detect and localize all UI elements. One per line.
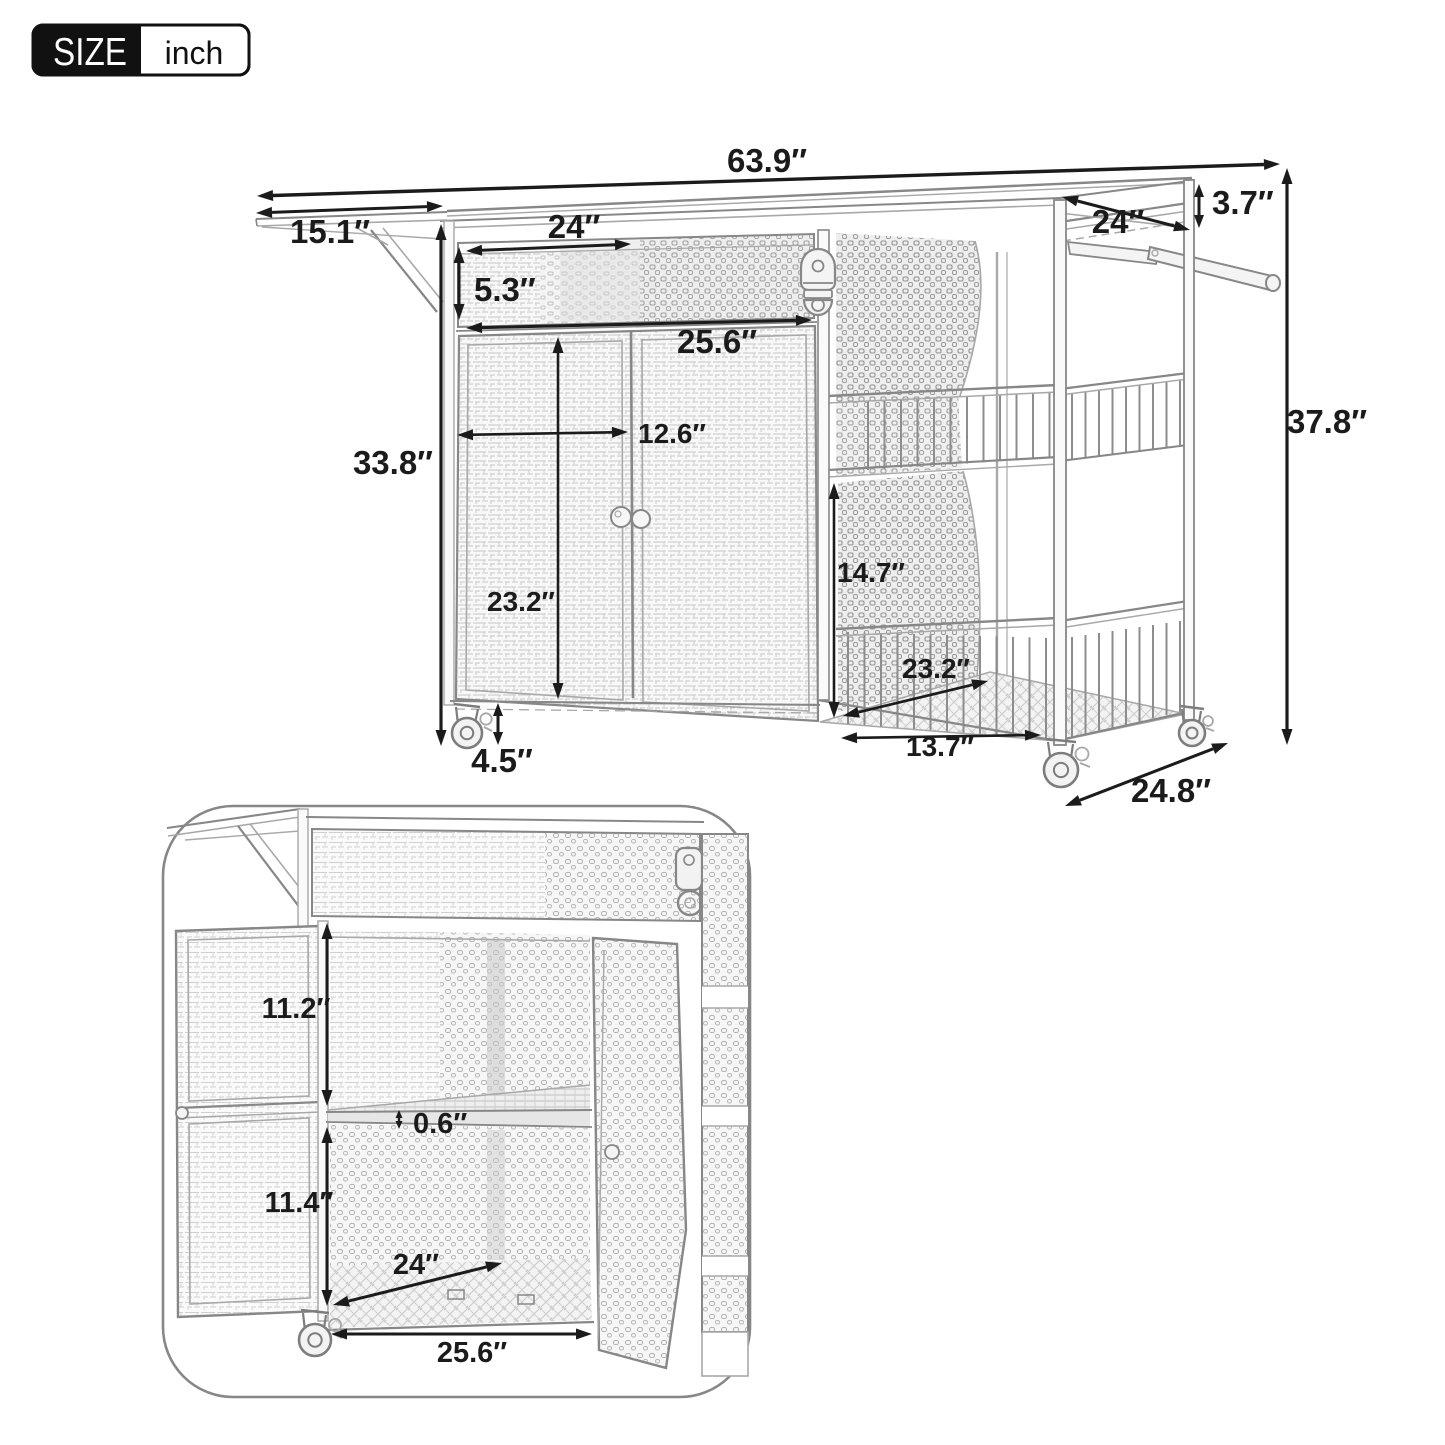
svg-text:24″: 24″ (1092, 203, 1145, 240)
svg-text:23.2″: 23.2″ (902, 653, 970, 684)
svg-text:12.6″: 12.6″ (638, 418, 706, 449)
svg-text:13.7″: 13.7″ (906, 731, 974, 762)
svg-text:63.9″: 63.9″ (727, 142, 807, 179)
svg-text:11.2″: 11.2″ (262, 993, 331, 1025)
svg-text:24.8″: 24.8″ (1131, 772, 1211, 809)
svg-text:5.3″: 5.3″ (474, 271, 536, 308)
svg-text:inch: inch (165, 35, 224, 71)
svg-text:3.7″: 3.7″ (1212, 184, 1274, 221)
svg-text:25.6″: 25.6″ (677, 323, 757, 360)
svg-text:0.6″: 0.6″ (413, 1108, 467, 1140)
svg-text:24″: 24″ (393, 1249, 439, 1281)
svg-text:37.8″: 37.8″ (1287, 403, 1367, 440)
svg-text:24″: 24″ (548, 208, 601, 245)
svg-text:4.5″: 4.5″ (471, 742, 533, 779)
svg-text:SIZE: SIZE (53, 31, 127, 74)
svg-text:15.1″: 15.1″ (290, 213, 370, 250)
svg-text:33.8″: 33.8″ (353, 444, 433, 481)
svg-text:14.7″: 14.7″ (837, 557, 905, 588)
svg-text:25.6″: 25.6″ (437, 1337, 507, 1369)
svg-text:23.2″: 23.2″ (487, 586, 555, 617)
svg-text:11.4″: 11.4″ (265, 1187, 334, 1219)
